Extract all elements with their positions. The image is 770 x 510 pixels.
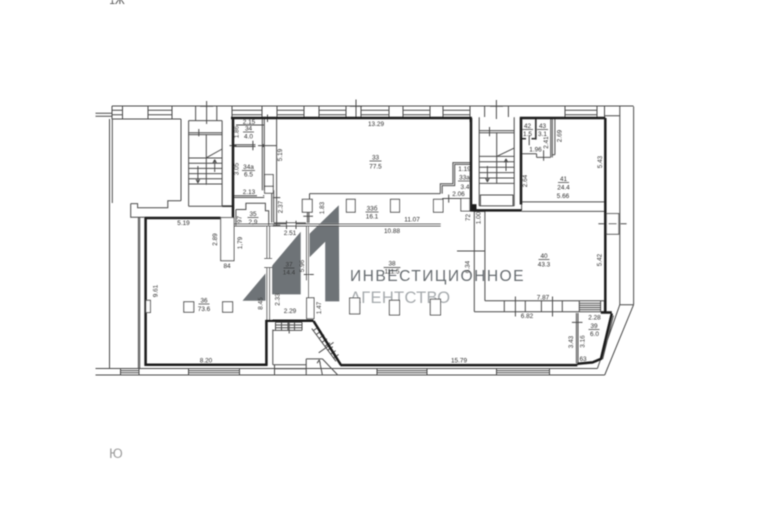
svg-text:38: 38: [388, 261, 396, 268]
svg-text:2.13: 2.13: [243, 189, 256, 196]
svg-text:2.29: 2.29: [284, 308, 297, 315]
svg-text:6.82: 6.82: [521, 313, 534, 320]
svg-text:9.61: 9.61: [153, 284, 160, 297]
svg-text:2.64: 2.64: [522, 174, 529, 187]
svg-text:111.5: 111.5: [384, 269, 399, 276]
svg-text:5.19: 5.19: [277, 148, 284, 161]
svg-text:40: 40: [540, 253, 548, 260]
svg-text:2.69: 2.69: [557, 129, 564, 142]
svg-text:2.28: 2.28: [588, 315, 601, 322]
svg-text:1.47: 1.47: [316, 301, 323, 314]
svg-text:24.4: 24.4: [557, 185, 570, 192]
svg-text:35: 35: [249, 211, 257, 218]
svg-text:2,9: 2,9: [249, 219, 258, 226]
svg-text:15.79: 15.79: [451, 358, 467, 365]
svg-text:5.19: 5.19: [177, 220, 190, 227]
svg-text:2.06: 2.06: [452, 191, 465, 198]
svg-text:42: 42: [524, 123, 532, 130]
svg-text:63: 63: [579, 356, 587, 363]
svg-text:5.43: 5.43: [597, 155, 604, 168]
svg-text:43.3: 43.3: [538, 262, 551, 269]
svg-text:34а: 34а: [243, 164, 254, 171]
svg-text:3.16: 3.16: [580, 335, 587, 348]
svg-text:1.19: 1.19: [458, 166, 471, 173]
svg-text:33: 33: [372, 155, 380, 162]
svg-text:33а: 33а: [459, 175, 470, 182]
svg-text:13.29: 13.29: [368, 121, 384, 128]
svg-text:77.5: 77.5: [369, 164, 382, 171]
svg-text:43: 43: [539, 123, 547, 130]
svg-text:1.00: 1.00: [476, 211, 483, 224]
svg-text:97: 97: [237, 216, 244, 224]
svg-text:36: 36: [200, 298, 208, 305]
svg-text:37: 37: [285, 262, 293, 269]
svg-text:6.0: 6.0: [590, 331, 599, 338]
svg-text:6.5: 6.5: [244, 172, 253, 179]
svg-text:34: 34: [245, 126, 253, 133]
svg-text:ИНВЕСТИЦИОННОЕ: ИНВЕСТИЦИОННОЕ: [350, 268, 525, 285]
svg-text:1,79: 1,79: [237, 236, 244, 249]
svg-text:1.83: 1.83: [319, 201, 326, 214]
svg-text:5.96: 5.96: [299, 259, 306, 272]
svg-text:33б: 33б: [367, 205, 378, 213]
svg-text:5.42: 5.42: [597, 253, 604, 266]
svg-text:39: 39: [590, 323, 598, 330]
svg-text:1.96: 1.96: [529, 147, 542, 154]
svg-text:2.33: 2.33: [275, 293, 282, 306]
svg-text:1.5: 1.5: [523, 131, 532, 138]
svg-text:2.37: 2.37: [278, 200, 285, 213]
svg-text:10.88: 10.88: [384, 228, 400, 235]
svg-text:8.20: 8.20: [200, 358, 213, 365]
svg-text:7.87: 7.87: [537, 295, 550, 302]
svg-text:3.43: 3.43: [568, 335, 575, 348]
svg-text:2.89: 2.89: [212, 233, 219, 246]
svg-text:11.07: 11.07: [404, 217, 420, 224]
svg-text:73.6: 73.6: [198, 306, 211, 313]
svg-text:3.05: 3.05: [234, 162, 241, 175]
svg-text:41: 41: [560, 176, 568, 183]
svg-text:8.45: 8.45: [258, 297, 265, 310]
svg-text:84: 84: [223, 263, 231, 270]
svg-text:3.4: 3.4: [461, 184, 470, 191]
svg-text:Ю: Ю: [109, 446, 123, 461]
svg-text:1Ж: 1Ж: [109, 0, 125, 7]
svg-text:2.41: 2.41: [543, 136, 550, 149]
svg-text:4.0: 4.0: [244, 134, 253, 141]
svg-text:14.4: 14.4: [283, 270, 296, 277]
svg-text:5.66: 5.66: [557, 193, 570, 200]
svg-text:72: 72: [465, 214, 472, 222]
svg-text:6.34: 6.34: [465, 260, 472, 273]
svg-text:16.1: 16.1: [366, 214, 379, 221]
svg-text:1.86: 1.86: [234, 125, 241, 138]
svg-text:2.51: 2.51: [284, 230, 297, 237]
